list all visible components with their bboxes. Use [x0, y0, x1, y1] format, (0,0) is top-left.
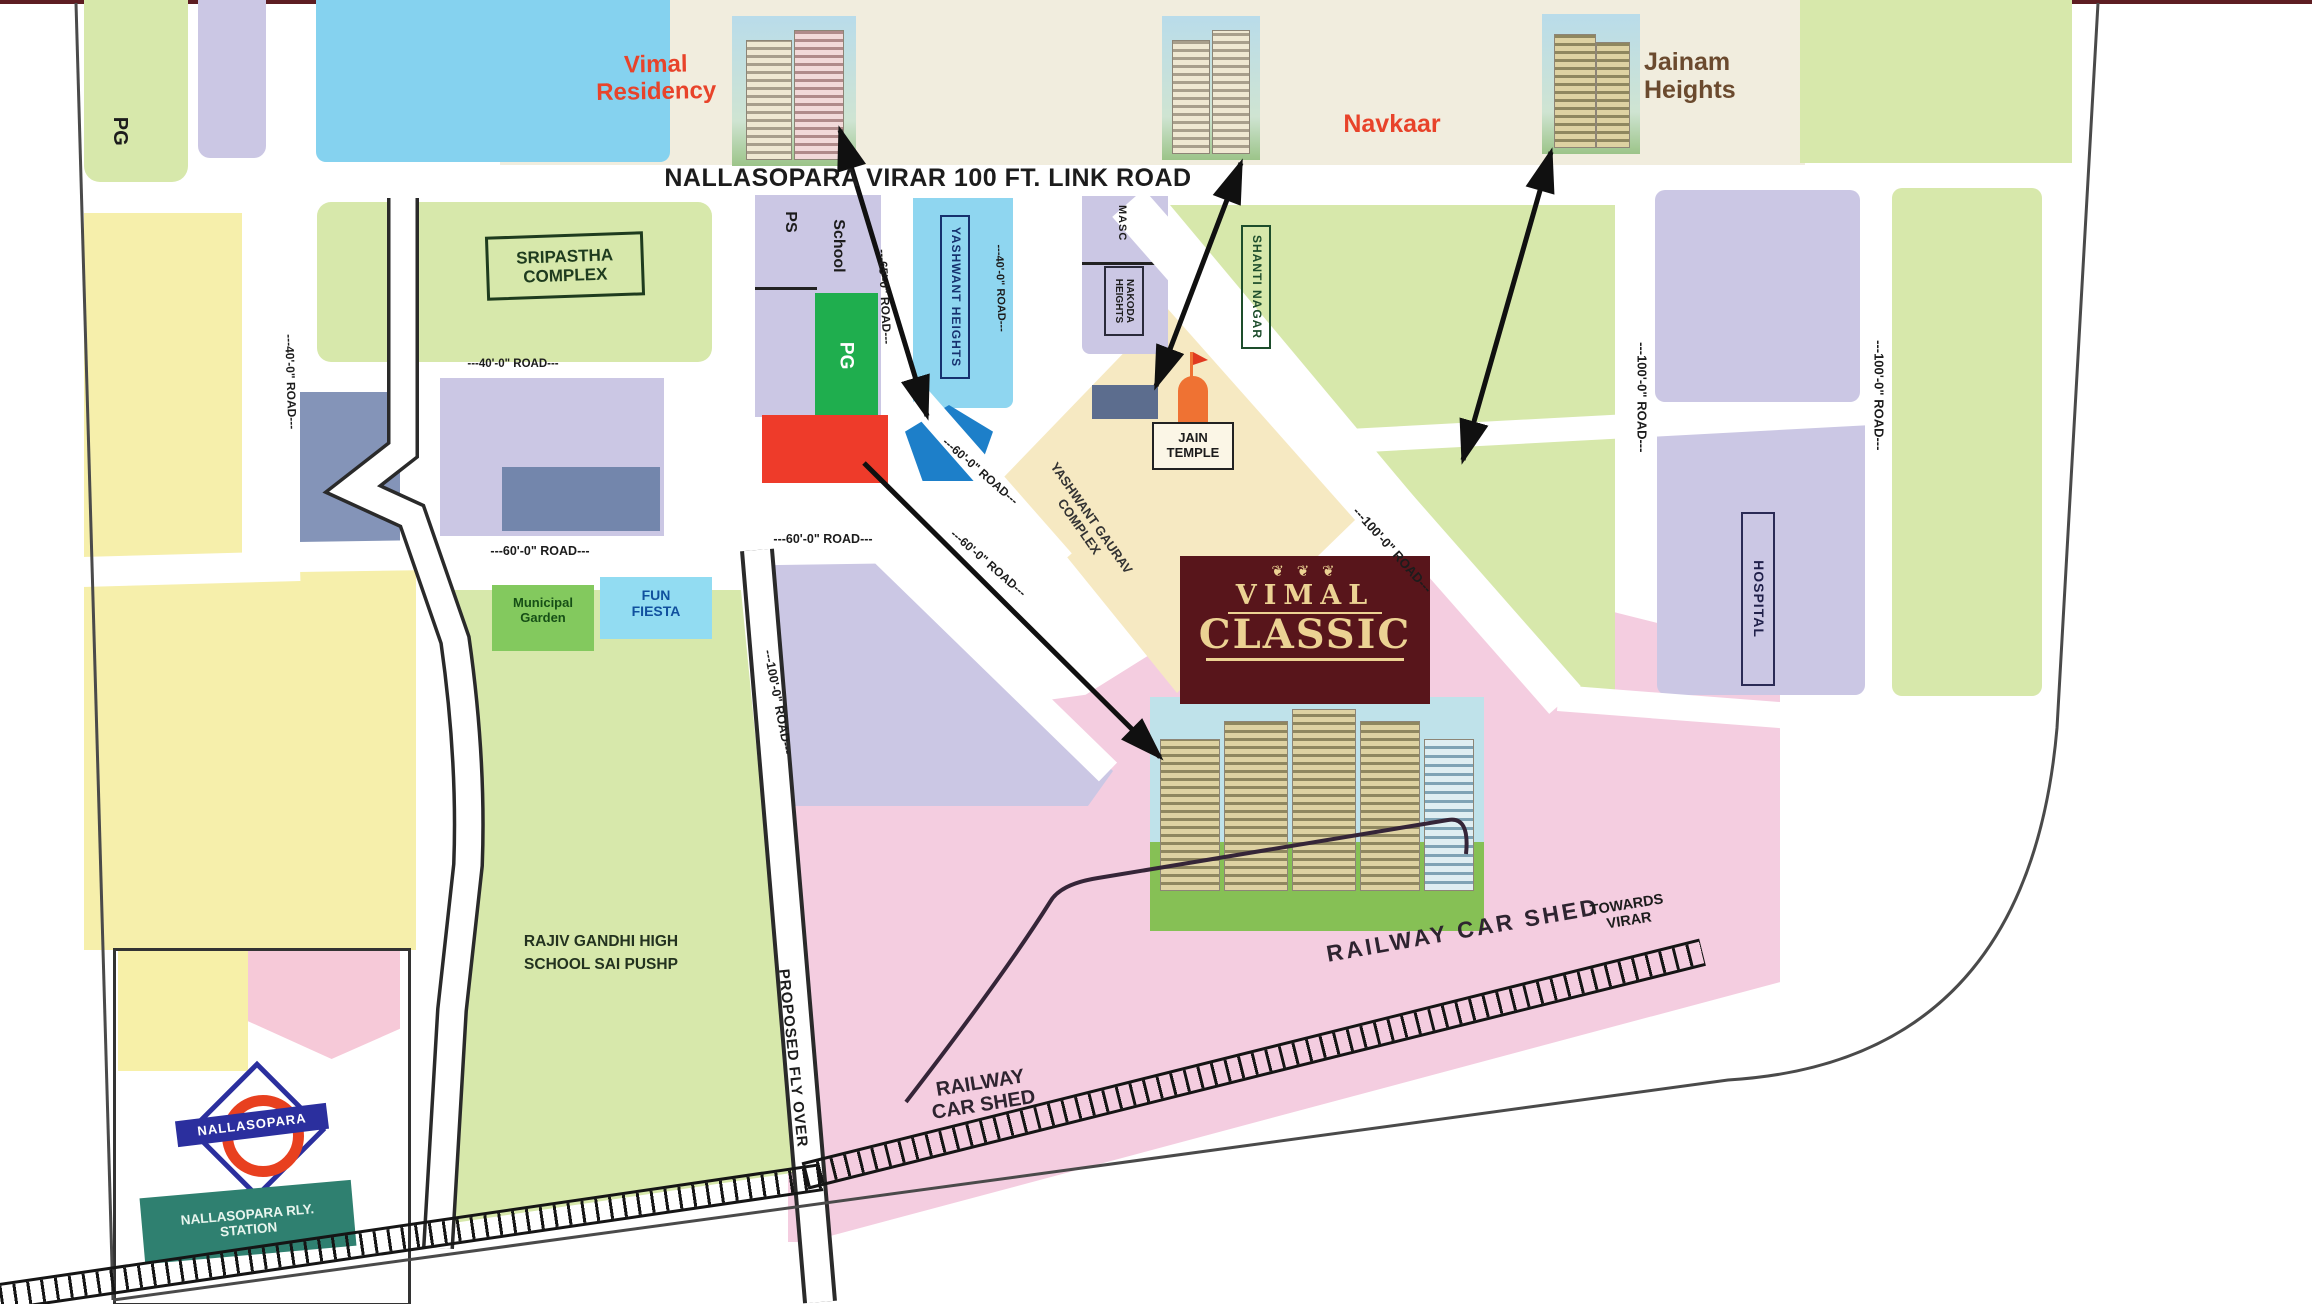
masjid-label: MASC: [1116, 193, 1128, 253]
navkaar-label: Navkaar: [1322, 110, 1462, 138]
nakoda-text: NAKODA HEIGHTS: [1113, 276, 1135, 326]
road-100-vertical-right2-label: ---100'-0" ROAD---: [1871, 280, 1886, 510]
carshed-boundary-line: [906, 820, 1467, 1102]
jain-temple-label: JAIN TEMPLE: [1152, 422, 1234, 470]
arrow-jainam: [1463, 152, 1551, 460]
fun-fiesta-label: FUN FIESTA: [616, 588, 696, 619]
overlay-layer: [0, 0, 2312, 1304]
hospital-label: HOSPITAL: [1741, 512, 1775, 686]
ps-label: PS: [781, 197, 799, 247]
road-60-horizontal-left-label: ---60'-0" ROAD---: [455, 544, 625, 558]
jain-temple-text: JAIN TEMPLE: [1165, 431, 1221, 460]
road-60-horizontal-right-label: ---60'-0" ROAD---: [748, 532, 898, 546]
yashwant-heights-text: YASHWANT HEIGHTS: [948, 227, 961, 367]
municipal-garden-label: Municipal Garden: [498, 596, 588, 625]
pg-left-label: PG: [109, 101, 131, 161]
sripastha-complex-label: SRIPASTHA COMPLEX: [485, 231, 645, 300]
nakoda-heights-label: NAKODA HEIGHTS: [1104, 266, 1144, 336]
yashwant-heights-label: YASHWANT HEIGHTS: [940, 215, 970, 379]
rajiv-gandhi-label: RAJIV GANDHI HIGH SCHOOL SAI PUSHP: [522, 930, 680, 977]
link-road-label: NALLASOPARA VIRAR 100 FT. LINK ROAD: [593, 164, 1263, 192]
pg-green-label: PG: [835, 326, 856, 386]
road-100-vertical-right1-label: ---100'-0" ROAD---: [1634, 282, 1649, 512]
shanti-nagar-label: SHANTI NAGAR: [1241, 225, 1271, 349]
road-40-horizontal-label: ---40'-0" ROAD---: [438, 358, 588, 371]
hospital-text: HOSPITAL: [1750, 560, 1766, 638]
map-border-left: [76, 3, 113, 1300]
jainam-heights-label: Jainam Heights: [1644, 48, 1779, 104]
school-label: School: [829, 198, 847, 294]
location-map: NALLASOPARA NALLASOPARA RLY. STATION: [0, 0, 2312, 1304]
sripastha-text: SRIPASTHA COMPLEX: [504, 245, 625, 287]
arrow-navkaar: [1156, 163, 1241, 386]
shanti-nagar-text: SHANTI NAGAR: [1249, 235, 1262, 339]
vimal-residency-label: Vimal Residency: [592, 51, 721, 107]
